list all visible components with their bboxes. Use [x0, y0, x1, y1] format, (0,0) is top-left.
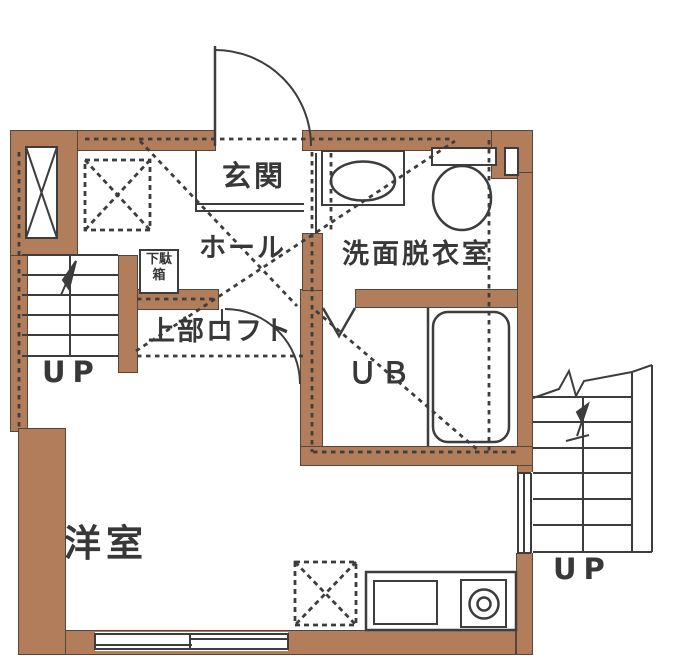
- kitchen-sink-icon: [374, 581, 437, 624]
- wall-stairs-side: [118, 255, 138, 373]
- wall-left-thick: [18, 428, 66, 655]
- wall-right-upper: [517, 172, 533, 474]
- stove-icon: [461, 580, 506, 627]
- kitchen-counter-icon: [366, 572, 516, 630]
- wall-top-mid: [302, 130, 493, 151]
- room-label-loft: 上部ロフト: [148, 318, 293, 345]
- wall-right-lower: [516, 552, 533, 655]
- room-label-washroom: 洗面脱衣室: [342, 241, 492, 268]
- bathtub-icon: [428, 308, 509, 446]
- window-bottom: [95, 632, 288, 651]
- wall-mid-vertical: [300, 289, 323, 466]
- washbasin-icon: [322, 151, 404, 205]
- stairs-right-up-label: UP: [553, 555, 612, 584]
- stairs-left-up-label: UP: [42, 358, 101, 387]
- room-label-unit-bath: ＵＢ: [348, 359, 414, 388]
- room-label-western-room: 洋室: [64, 525, 148, 562]
- room-label-genkan: 玄関: [222, 162, 286, 191]
- shaft-box: [25, 146, 58, 239]
- loft-opening-icon: [85, 160, 150, 230]
- shoe-cabinet-box: 下駄箱: [139, 249, 179, 294]
- stairs-right: [533, 365, 652, 552]
- stairs-left: [22, 255, 118, 356]
- wall-ub-bottom: [300, 446, 533, 466]
- ub-folding-door-icon: [323, 308, 355, 336]
- toilet-icon: [432, 148, 496, 230]
- entrance-door-icon: [215, 46, 311, 146]
- window-top-right: [504, 147, 519, 176]
- wall-washroom-divider: [302, 233, 323, 291]
- wall-ub-top: [355, 289, 518, 308]
- burner-icon: [470, 590, 499, 619]
- refrigerator-space-icon: [295, 562, 356, 625]
- floor-plan: 玄関 ホール 洗面脱衣室 上部ロフト ＵＢ 洋室 UP UP 下駄箱: [0, 0, 678, 666]
- window-right: [516, 472, 533, 553]
- room-label-hall: ホール: [199, 235, 286, 262]
